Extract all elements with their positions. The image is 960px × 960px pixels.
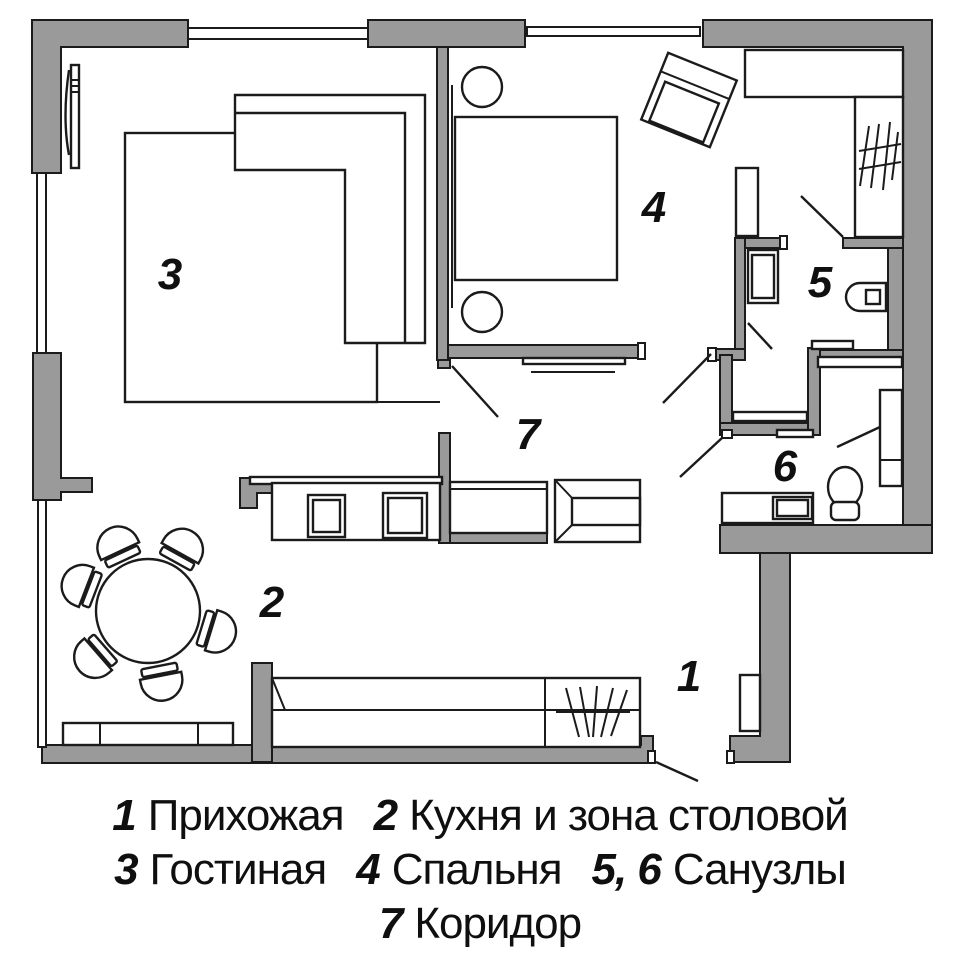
window-bench <box>63 723 233 745</box>
shoe-cabinet <box>740 675 760 731</box>
room-label-6: 6 <box>773 442 798 491</box>
legend-line-3: 7 Коридор <box>379 898 581 951</box>
legend-line-2: 3 Гостиная 4 Спальня 5, 6 Санузлы <box>114 844 846 897</box>
nightstand <box>462 67 502 107</box>
room-label-3: 3 <box>158 250 182 299</box>
wall-room5-north-right <box>843 238 903 248</box>
window-top-left <box>188 28 368 39</box>
room-label-5: 5 <box>808 258 833 307</box>
window-top-right <box>527 27 700 36</box>
mirror-shelf <box>818 357 902 367</box>
legend-room-name: Спальня <box>392 844 562 897</box>
wall-bath6-south <box>720 525 932 553</box>
shelf <box>812 341 853 349</box>
room-label-4: 4 <box>641 183 666 232</box>
wall-hall-stub <box>252 663 272 762</box>
legend-number: 2 <box>374 790 397 843</box>
tv-icon <box>66 65 80 168</box>
door-swing-bath6-cabinet <box>837 427 880 447</box>
shower-bench <box>733 412 807 421</box>
window-left-upper <box>37 173 46 353</box>
bathroom-cabinet <box>880 390 902 486</box>
door-jamb <box>648 751 655 763</box>
bed <box>455 117 617 280</box>
wall-room5-west <box>735 238 745 360</box>
wall-divider-living-bedroom <box>437 47 448 360</box>
wall-top-middle <box>368 20 525 47</box>
legend-room-name: Кухня и зона столовой <box>409 790 848 843</box>
legend-entry-kitchen: 2 Кухня и зона столовой <box>374 790 848 843</box>
door-jamb <box>780 236 787 249</box>
bedroom-furniture <box>452 50 903 372</box>
sofa <box>235 95 425 343</box>
legend-number: 5, 6 <box>592 844 661 897</box>
legend-entry-corridor: 7 Коридор <box>379 898 581 951</box>
fridge <box>555 480 640 542</box>
legend-room-name: Коридор <box>414 898 581 951</box>
legend-entry-living: 3 Гостиная <box>114 844 326 897</box>
door-swing-shower <box>748 323 772 349</box>
legend-entry-bathrooms: 5, 6 Санузлы <box>592 844 846 897</box>
dining-set <box>56 520 242 705</box>
legend-entry-hallway: 1 Прихожая <box>112 790 343 843</box>
legend-number: 4 <box>356 844 379 897</box>
dining-table <box>96 559 200 663</box>
wardrobe-top <box>745 50 903 97</box>
toilet-icon <box>828 467 862 520</box>
wall-bedroom-south <box>448 345 638 358</box>
door-jamb <box>722 430 732 438</box>
dining-chair <box>138 662 186 704</box>
wall-top-left-corner <box>32 20 188 173</box>
floor-plan-drawing: 1 2 3 4 5 6 7 <box>0 0 960 790</box>
legend-room-name: Гостиная <box>150 844 327 897</box>
desk-chair <box>641 53 737 147</box>
shower-threshold <box>777 430 813 437</box>
floor-plan-page: 1 2 3 4 5 6 7 1 Прихожая 2 Кухня и зона … <box>0 0 960 960</box>
corridor-shelf <box>523 358 625 364</box>
nightstand <box>462 292 502 332</box>
legend-number: 3 <box>114 844 137 897</box>
stove <box>383 493 427 538</box>
door-swing-bedroom <box>452 366 498 417</box>
room-label-1: 1 <box>677 652 701 701</box>
door-swing-bath5 <box>801 196 843 237</box>
tall-cabinet <box>736 168 758 236</box>
room-label-2: 2 <box>259 578 285 627</box>
door-swing-entrance <box>656 762 698 781</box>
legend-entry-bedroom: 4 Спальня <box>356 844 561 897</box>
toilet-icon <box>846 283 886 311</box>
door-jamb <box>638 343 645 359</box>
legend-line-1: 1 Прихожая 2 Кухня и зона столовой <box>112 790 848 843</box>
legend-room-name: Санузлы <box>673 844 846 897</box>
door-swing-hall <box>663 354 711 403</box>
dining-chair <box>195 607 241 657</box>
wall-room5-east <box>888 248 903 350</box>
room-label-7: 7 <box>516 410 543 459</box>
wall-left-pier <box>33 353 92 500</box>
legend: 1 Прихожая 2 Кухня и зона столовой 3 Гос… <box>0 790 960 950</box>
legend-number: 7 <box>379 898 402 951</box>
window-left-lower <box>38 500 46 747</box>
door-swing-bath6 <box>680 438 722 477</box>
door-jamb <box>727 751 734 763</box>
legend-number: 1 <box>112 790 135 843</box>
legend-room-name: Прихожая <box>148 790 344 843</box>
living-room-furniture <box>66 65 441 402</box>
wall-divider-cap <box>438 360 450 368</box>
